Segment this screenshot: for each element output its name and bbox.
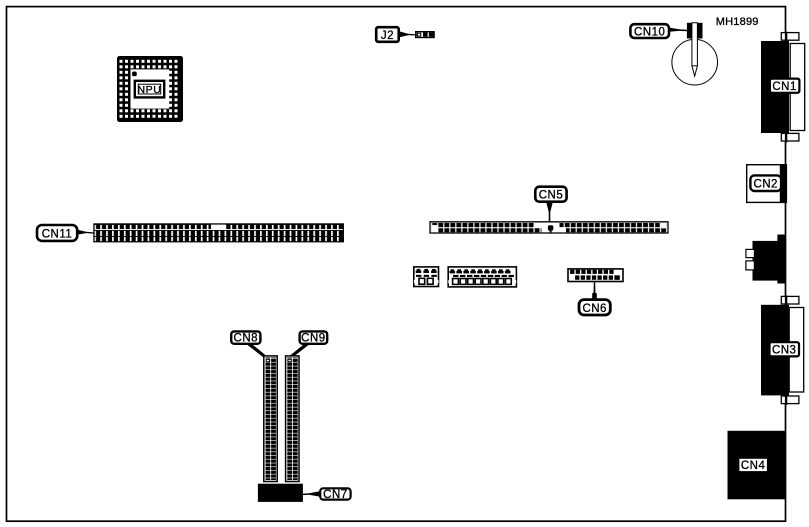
svg-text:MH1899: MH1899 — [716, 16, 759, 28]
svg-text:CN11: CN11 — [42, 228, 73, 240]
svg-text:CN5: CN5 — [539, 190, 564, 202]
svg-text:CN6: CN6 — [582, 303, 607, 315]
svg-text:J2: J2 — [381, 30, 394, 42]
svg-text:CN7: CN7 — [323, 489, 348, 501]
svg-text:CN10: CN10 — [634, 26, 665, 38]
svg-text:CN1: CN1 — [772, 81, 797, 93]
svg-text:CN2: CN2 — [753, 179, 778, 191]
svg-text:CN9: CN9 — [301, 333, 326, 345]
svg-text:NPU: NPU — [138, 84, 162, 96]
svg-text:CN8: CN8 — [234, 333, 259, 345]
svg-text:CN4: CN4 — [741, 460, 766, 472]
svg-text:CN3: CN3 — [772, 345, 797, 357]
